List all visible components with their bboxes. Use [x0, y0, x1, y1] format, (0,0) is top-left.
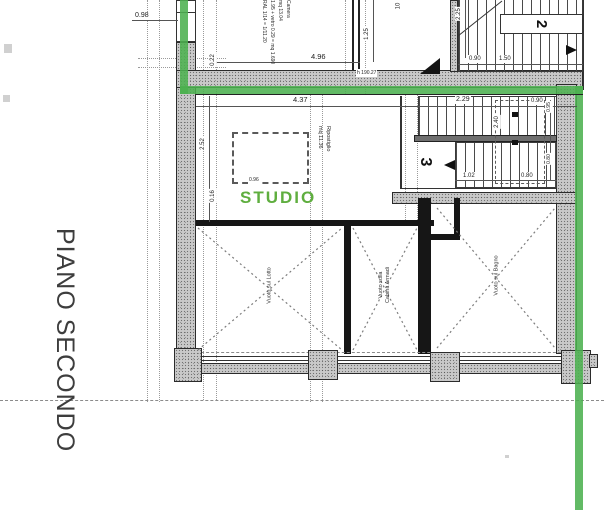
dim-line-098 — [132, 20, 178, 21]
dim-437: 4.37 — [292, 96, 309, 104]
dim-225: 2.25 — [455, 7, 463, 21]
dim-line-125 — [373, 0, 374, 62]
dim-022: 0.22 — [209, 53, 217, 67]
dim-252: 2.52 — [199, 137, 207, 151]
storage-annotation: Ripostiglio mq 11.36 — [316, 126, 332, 190]
void-right-label: Vuoto sul Bagno — [494, 231, 501, 321]
void-left-label: Vuoto sul Lotto — [267, 241, 274, 331]
dim-line-225 — [465, 0, 466, 58]
studio-label: STUDIO — [240, 188, 316, 208]
dim-090b: 0.90 — [530, 97, 544, 105]
dim-line-252 — [209, 96, 210, 222]
dim-102: 1.02 — [462, 172, 476, 180]
camera-line3: 1.95 + vetro 0.29 = mq 1.690 — [268, 0, 276, 64]
dim-229: 2.29 — [455, 96, 471, 104]
dim-080b: 0.80 — [545, 153, 553, 165]
dim-150: 1.50 — [498, 55, 512, 63]
dim-080a: 0.80 — [520, 172, 534, 180]
camera-line4: RAL 1/14 = 1/11.20 — [260, 0, 268, 64]
dim-line-437 — [196, 106, 577, 107]
storage-line2: mq 11.36 — [316, 126, 324, 190]
dim-10: 10 — [394, 2, 402, 11]
floor-plan-canvas: PIANO SECONDO 2 3 h 190.27 — [0, 0, 604, 510]
dim-090a: 0.90 — [468, 55, 482, 63]
dim-125: 1.25 — [363, 27, 371, 41]
storage-line1: Ripostiglio — [324, 126, 332, 190]
camera-annotation: Camera mq 13.04 1.95 + vetro 0.29 = mq 1… — [260, 0, 292, 64]
void-mid-line1: Vuoto sulla — [378, 240, 385, 330]
void-cross-lines — [0, 0, 604, 510]
dim-016: 0.16 — [209, 189, 217, 203]
dim-098: 0.98 — [134, 12, 150, 20]
dim-line-stair3 — [455, 180, 557, 181]
dim-095: 0.95 — [545, 101, 553, 113]
dim-496: 4.96 — [310, 53, 327, 61]
camera-line1: Camera — [284, 0, 292, 64]
dim-line-stair2 — [458, 64, 583, 65]
dim-240: 2.40 — [493, 115, 501, 129]
void-mid-label: Vuoto sulla Cabina Armadi — [378, 240, 392, 330]
void-mid-line2: Cabina Armadi — [385, 240, 392, 330]
camera-line2: mq 13.04 — [276, 0, 284, 64]
